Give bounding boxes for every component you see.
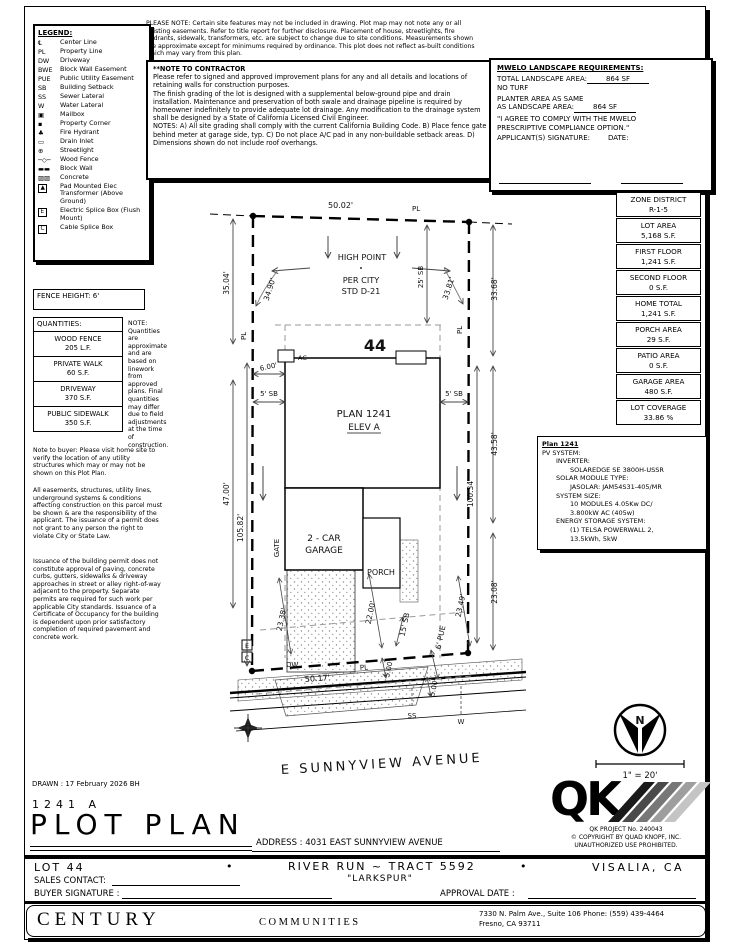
dim-label: 35.04' [222, 271, 231, 295]
applicant-signature-label: APPLICANT(S) SIGNATURE: [497, 134, 590, 143]
signature-line[interactable] [499, 182, 591, 184]
pv-plan-title: Plan 1241 [542, 440, 702, 449]
dim-label: 105.82' [236, 514, 245, 542]
pv-line: INVERTER: [542, 457, 702, 466]
equipment-pad [396, 351, 426, 364]
bullet-separator: • [226, 860, 233, 873]
sewer-label: SS [408, 712, 417, 720]
buyer-signature-label: BUYER SIGNATURE : [34, 889, 119, 899]
water-lateral-icon: W [38, 102, 60, 110]
pv-line: 10 MODULES 4.05Kw DC/ [542, 500, 702, 509]
zone-value: 33.86 % [644, 413, 674, 422]
quantity-name: WOOD FENCE [54, 335, 101, 343]
quantity-value: 350 S.F. [65, 419, 92, 427]
street-centerline [236, 710, 526, 731]
pl-label: PL [412, 205, 420, 213]
driveway [287, 570, 355, 672]
table-row: LOT AREA5,168 S.F. [616, 218, 701, 243]
approval-date-label: APPROVAL DATE : [440, 889, 515, 899]
pl-label: PL [240, 332, 248, 340]
neighbor-property-line [210, 214, 253, 216]
mwelo-landscape-value: 864 SF [587, 75, 649, 85]
legend-label: Property Corner [60, 120, 111, 128]
concrete-icon: ▨▨ [38, 174, 60, 182]
zone-value: 29 S.F. [647, 335, 671, 344]
zone-label: GARAGE AREA [633, 377, 685, 386]
high-point-label: PER CITY [343, 275, 381, 285]
pv-line: ENERGY STORAGE SYSTEM: [542, 517, 702, 526]
qk-project-number: QK PROJECT No. 240043 [548, 826, 704, 833]
dim-label: 22.00' [364, 600, 378, 625]
legend-label: Sewer Lateral [60, 93, 104, 101]
legend-label: Pad Mounted Elec Transformer (Above Grou… [60, 183, 146, 206]
pv-line: PV SYSTEM: [542, 449, 702, 458]
table-row: GARAGE AREA480 S.F. [616, 374, 701, 399]
fire-hydrant-icon: ♣ [38, 129, 60, 137]
legend-label: Public Utility Easement [60, 75, 134, 83]
pv-line: SYSTEM SIZE: [542, 492, 702, 501]
zone-label: PORCH AREA [635, 325, 682, 334]
dim-label: 43.58' [490, 432, 499, 456]
tract-label: RIVER RUN ~ TRACT 5592 [288, 860, 476, 873]
lot-label: LOT 44 [34, 861, 85, 874]
builder-name: CENTURY [37, 909, 161, 931]
property-corner [250, 213, 256, 219]
qk-unauthorized: UNAUTHORIZED USE PROHIBITED. [548, 842, 704, 849]
table-row: SECOND FLOOR0 S.F. [616, 270, 701, 295]
high-point-mark [360, 267, 362, 269]
legend-label: Building Setback [60, 84, 114, 92]
table-row: PRIVATE WALK60 S.F. [34, 356, 122, 381]
address-underline [252, 850, 500, 852]
mailbox-icon: ▣ [38, 111, 60, 119]
bullet-separator: • [520, 860, 527, 873]
garage-label: GARAGE [305, 546, 343, 556]
dim-label: 23.08' [490, 580, 499, 604]
plot-plan-sheet: PLEASE NOTE: Certain site features may n… [0, 0, 732, 946]
contractor-note-box: **NOTE TO CONTRACTOR Please refer to sig… [146, 60, 494, 180]
qk-logo: QK [550, 772, 619, 826]
pv-line: SOLAR MODULE TYPE: [542, 474, 702, 483]
legend-label: Water Lateral [60, 102, 103, 110]
legend-label: Cable Splice Box [60, 224, 113, 232]
dim-label: 34.90' [262, 277, 278, 302]
buyer-note: Note to buyer: Please visit home site to… [33, 447, 161, 477]
high-point-label: STD D-21 [342, 286, 381, 296]
legend-box: LEGEND: ℄Center Line PLProperty Line DWD… [33, 24, 151, 262]
quantity-value: 60 S.F. [67, 369, 89, 377]
zone-value: 5,168 S.F. [641, 231, 676, 240]
entry-walk [400, 540, 418, 602]
pv-line: (1) TELSA POWERWALL 2, [542, 526, 702, 535]
garage-outline [285, 488, 363, 570]
pue-label: 6' PUE [434, 625, 448, 651]
pv-system-box: Plan 1241 PV SYSTEM: INVERTER: SOLAREDGE… [537, 436, 707, 550]
left-property-line [252, 216, 253, 671]
pl-label: PL [456, 326, 464, 334]
property-corner [249, 668, 255, 674]
titleblock-divider [24, 855, 706, 859]
dim-label: 100.34' [466, 479, 475, 507]
table-row: PATIO AREA0 S.F. [616, 348, 701, 373]
porch-label: PORCH [367, 568, 395, 577]
table-row: LOT COVERAGE33.86 % [616, 400, 701, 425]
dim-label: 50.17' [305, 673, 331, 684]
pad-transformer-icon: ▲ [38, 184, 47, 193]
footer-divider [24, 901, 706, 904]
legend-label: Block Wall [60, 165, 93, 173]
pv-line: JASOLAR: JAM54S31-405/MR [542, 483, 702, 492]
pv-line: 3.800kW AC (405w) [542, 509, 702, 518]
legend-label: Concrete [60, 174, 89, 182]
quantity-name: PUBLIC SIDEWALK [47, 410, 109, 418]
mwelo-agree-statement: "I AGREE TO COMPLY WITH THE MWELO PRESCR… [497, 115, 657, 132]
dim-label: 6.00' [259, 361, 278, 372]
public-utility-easement-icon: PUE [38, 75, 60, 83]
address-text: ADDRESS : 4031 EAST SUNNYVIEW AVENUE [256, 838, 443, 848]
garage-label: 2 - CAR [307, 534, 340, 544]
water-label: W [458, 718, 465, 726]
zone-label: LOT AREA [641, 221, 676, 230]
centerline-icon: ℄ [38, 39, 60, 47]
city-label: VISALIA, CA [592, 861, 684, 874]
streetlight-icon: ⊕ [38, 147, 60, 155]
quantity-value: 205 L.F. [65, 344, 91, 352]
legend-label: Wood Fence [60, 156, 99, 164]
drain-inlet-icon: ▭ [38, 138, 60, 146]
driveway-icon: DW [38, 57, 60, 65]
builder-office-address: 7330 N. Palm Ave., Suite 106 Phone: (559… [479, 910, 664, 918]
sheet-bottom-shadow [28, 938, 710, 942]
legend-label: Fire Hydrant [60, 129, 99, 137]
zone-value: 0 S.F. [649, 361, 668, 370]
street-name: E SUNNYVIEW AVENUE [280, 751, 483, 778]
please-note-text: PLEASE NOTE: Certain site features may n… [146, 20, 482, 58]
legend-label: Streetlight [60, 147, 94, 155]
rear-property-line [253, 216, 469, 222]
quantity-name: DRIVEWAY [60, 385, 96, 393]
contractor-note-p2: The finish grading of the lot is designe… [153, 90, 487, 123]
zone-label: FIRST FLOOR [635, 247, 682, 256]
quantities-title: QUANTITIES: [34, 318, 122, 331]
date-label: DATE: [608, 134, 629, 143]
builder-name-suffix: COMMUNITIES [259, 917, 361, 928]
dim-label: 23.38' [275, 607, 289, 632]
table-row: HOME TOTAL1,241 S.F. [616, 296, 701, 321]
zone-value: 1,241 S.F. [641, 309, 676, 318]
north-label: N [635, 714, 644, 727]
builder-office-city: Fresno, CA 93711 [479, 920, 541, 928]
compass-circle [615, 705, 665, 755]
high-point-label: HIGH POINT [338, 252, 388, 262]
qk-logo-block: QK QK PROJECT No. 240043 © COPYRIGHT BY … [548, 778, 704, 858]
contractor-note-p1: Please refer to signed and approved impr… [153, 73, 487, 89]
legend-label: Center Line [60, 39, 97, 47]
lot-number: 44 [364, 336, 386, 355]
porch-outline [363, 518, 400, 588]
table-row: ZONE DISTRICTR-1-5 [616, 192, 701, 217]
elevation-label: ELEV A [348, 423, 380, 433]
contractor-note-title: **NOTE TO CONTRACTOR [153, 65, 487, 73]
mwelo-no-turf: NO TURF [497, 84, 705, 93]
legend-label: Property Line [60, 48, 102, 56]
fence-height-text: FENCE HEIGHT: 6' [37, 292, 141, 301]
table-row: DRIVEWAY370 S.F. [34, 381, 122, 406]
quantities-table: QUANTITIES: WOOD FENCE205 L.F. PRIVATE W… [33, 317, 123, 432]
zone-value: 480 S.F. [644, 387, 672, 396]
setback-label: 5' SB [445, 390, 463, 398]
zone-data-column: ZONE DISTRICTR-1-5 LOT AREA5,168 S.F. FI… [616, 192, 701, 426]
legend-label: Block Wall Easement [60, 66, 127, 74]
pv-line: 13.5kWh, 5kW [542, 535, 702, 544]
setback-label: 15' SB [398, 612, 412, 637]
zone-value: 1,241 S.F. [641, 257, 676, 266]
legend-title: LEGEND: [38, 29, 146, 38]
table-row: FIRST FLOOR1,241 S.F. [616, 244, 701, 269]
neighbor-property-line [469, 222, 512, 224]
zone-label: PATIO AREA [637, 351, 679, 360]
driveway-apron [275, 667, 428, 716]
gate-label: GATE [273, 539, 281, 557]
sales-contact-line[interactable] [112, 884, 240, 886]
approval-date-line[interactable] [528, 897, 696, 899]
streetlight-icon [234, 714, 262, 742]
sewer-lateral-icon: SS [38, 93, 60, 101]
zone-value: 0 S.F. [649, 283, 668, 292]
page-title: PLOT PLAN [30, 808, 246, 841]
electric-splice-box-icon: E [38, 208, 47, 217]
builder-footer-box: CENTURY COMMUNITIES 7330 N. Palm Ave., S… [26, 905, 706, 937]
permit-note: Issuance of the building permit does not… [33, 558, 164, 642]
buyer-signature-line[interactable] [122, 897, 332, 899]
plan-label: PLAN 1241 [337, 409, 392, 420]
qk-copyright: © COPYRIGHT BY QUAD KNOPF, INC. [548, 834, 704, 841]
pl-label: PL [360, 663, 369, 672]
legend-label: Drain Inlet [60, 138, 93, 146]
property-corner-icon: ▪ [38, 120, 60, 128]
driveway-label: DW [286, 661, 298, 669]
property-corner [466, 219, 472, 225]
contractor-note-p3: NOTES: A) All site grading shall comply … [153, 122, 487, 147]
quantity-name: PRIVATE WALK [53, 360, 102, 368]
zone-label: ZONE DISTRICT [631, 195, 687, 204]
dim-label: 33.68' [490, 277, 499, 301]
property-corner [465, 650, 471, 656]
mwelo-planter-line1: PLANTER AREA AS SAME [497, 95, 705, 104]
mwelo-title: MWELO LANDSCAPE REQUIREMENTS: [497, 64, 705, 73]
table-row: PUBLIC SIDEWALK350 S.F. [34, 406, 122, 431]
block-wall-easement-icon: BWE [38, 66, 60, 74]
legend-label: Electric Splice Box (Flush Mount) [60, 207, 146, 223]
north-arrow: N 1" = 20' [586, 698, 694, 782]
dim-label: 23.49' [454, 593, 468, 618]
ac-label: AC [298, 354, 307, 362]
right-property-line [468, 222, 469, 653]
mwelo-planter-line2: AS LANDSCAPE AREA: [497, 103, 574, 111]
ac-pad [278, 350, 294, 362]
table-row: PORCH AREA29 S.F. [616, 322, 701, 347]
community-name: "LARKSPUR" [300, 874, 460, 884]
dim-label: 50.02' [328, 201, 353, 210]
dim-label: 33.81' [441, 276, 457, 301]
mwelo-landscape-label: TOTAL LANDSCAPE AREA: [497, 75, 587, 83]
legend-label: Mailbox [60, 111, 85, 119]
easements-note: All easements, structures, utility lines… [33, 487, 164, 540]
cable-splice-box-icon: C [38, 225, 47, 234]
quantity-value: 370 S.F. [65, 394, 92, 402]
zone-label: SECOND FLOOR [630, 273, 687, 282]
legend-label: Driveway [60, 57, 90, 65]
drawn-by: DRAWN : 17 February 2026 BH [32, 780, 140, 789]
zone-label: HOME TOTAL [635, 299, 682, 308]
block-wall-icon: ▬▬ [38, 165, 60, 173]
setback-label: 25' SB [417, 266, 425, 289]
dim-label: 47.00' [222, 482, 231, 506]
setback-label: 5' SB [260, 390, 278, 398]
fence-height-box: FENCE HEIGHT: 6' [33, 289, 145, 310]
mwelo-box: MWELO LANDSCAPE REQUIREMENTS: TOTAL LAND… [489, 58, 713, 192]
wood-fence-icon: ─◇─ [38, 156, 60, 164]
zone-value: R-1-5 [649, 205, 668, 214]
building-setback-icon: SB [38, 84, 60, 92]
pv-line: SOLAREDGE SE 3800H-USSR [542, 466, 702, 475]
site-plan-drawing: E C [160, 188, 540, 818]
sales-contact-label: SALES CONTACT: [34, 876, 106, 886]
mwelo-planter-value: 864 SF [574, 103, 636, 113]
table-row: WOOD FENCE205 L.F. [34, 331, 122, 356]
date-line[interactable] [621, 182, 683, 184]
property-line-icon: PL [38, 48, 60, 56]
title-underline [30, 846, 252, 851]
zone-label: LOT COVERAGE [631, 403, 687, 412]
